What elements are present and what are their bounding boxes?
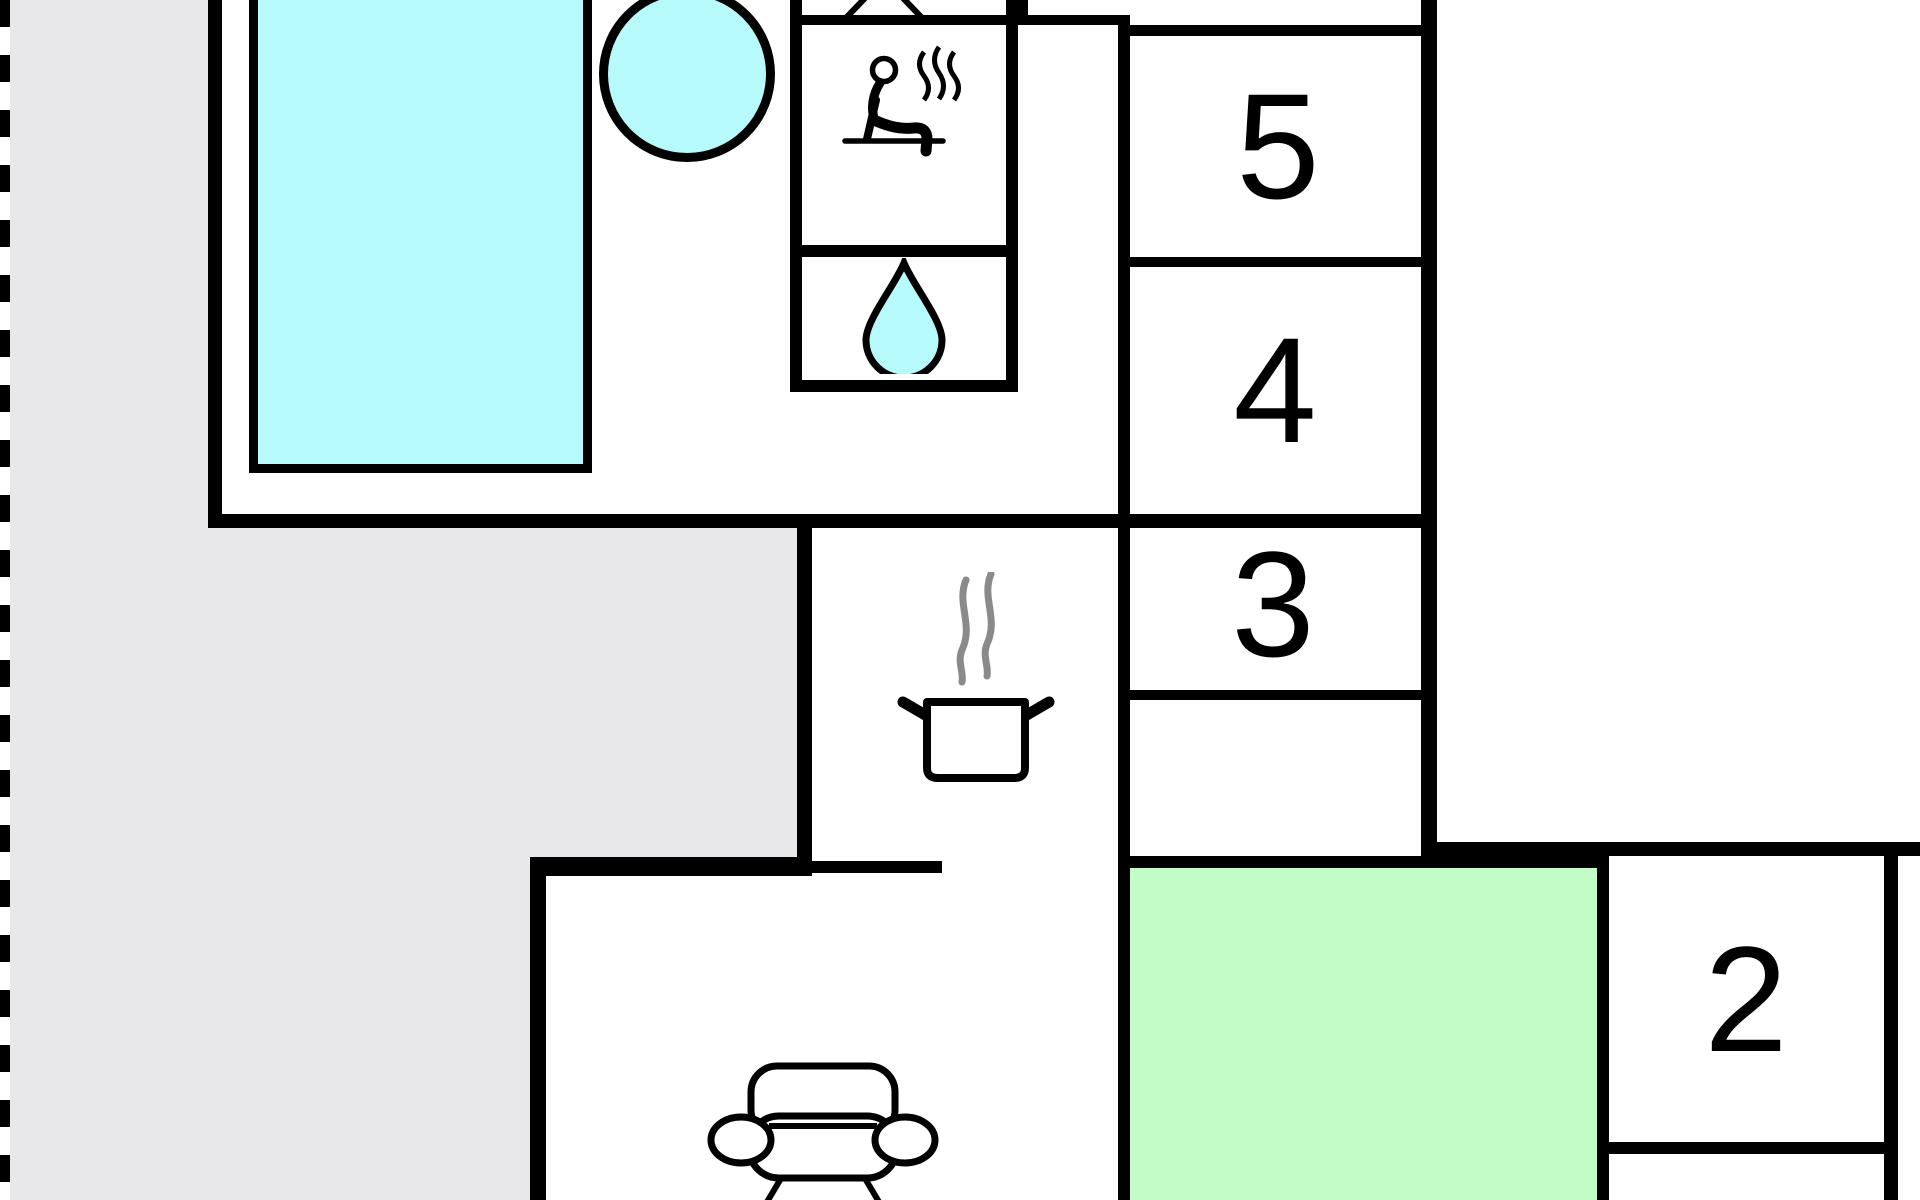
wall bbox=[1130, 690, 1421, 700]
wall bbox=[812, 861, 942, 873]
room-number: 3 bbox=[1231, 529, 1314, 679]
wall bbox=[790, 0, 802, 392]
sofa-icon bbox=[703, 1060, 943, 1200]
floor-plan: 5 4 3 2 bbox=[0, 0, 1920, 1200]
wall bbox=[1006, 0, 1028, 25]
room-number: 2 bbox=[1704, 924, 1787, 1074]
wall bbox=[1130, 257, 1421, 267]
terrace-area bbox=[10, 856, 534, 1200]
wall bbox=[797, 514, 812, 876]
property-boundary-dashed-line bbox=[0, 0, 10, 1200]
wall bbox=[1130, 25, 1431, 36]
wall bbox=[1421, 0, 1437, 857]
hot-tub bbox=[599, 0, 775, 162]
wall bbox=[1118, 856, 1609, 868]
water-drop-icon bbox=[856, 258, 952, 374]
sauna-icon bbox=[840, 42, 965, 167]
wall bbox=[530, 857, 812, 876]
room-number: 4 bbox=[1233, 315, 1316, 465]
swimming-pool bbox=[249, 0, 592, 473]
cooking-pot-icon bbox=[893, 572, 1058, 784]
wall bbox=[1437, 842, 1920, 856]
wall bbox=[530, 857, 546, 1200]
wall bbox=[790, 380, 1018, 392]
room-number: 5 bbox=[1236, 71, 1319, 221]
wall bbox=[1118, 15, 1130, 1200]
terrace-area bbox=[10, 528, 800, 858]
wall bbox=[1006, 15, 1018, 392]
wall bbox=[790, 245, 1018, 257]
wall bbox=[208, 0, 222, 528]
terrace-area bbox=[10, 0, 208, 530]
wall bbox=[1597, 1142, 1898, 1154]
green-room-floor bbox=[1130, 868, 1597, 1200]
table-icon-partial bbox=[838, 0, 930, 20]
wall bbox=[1028, 15, 1120, 25]
